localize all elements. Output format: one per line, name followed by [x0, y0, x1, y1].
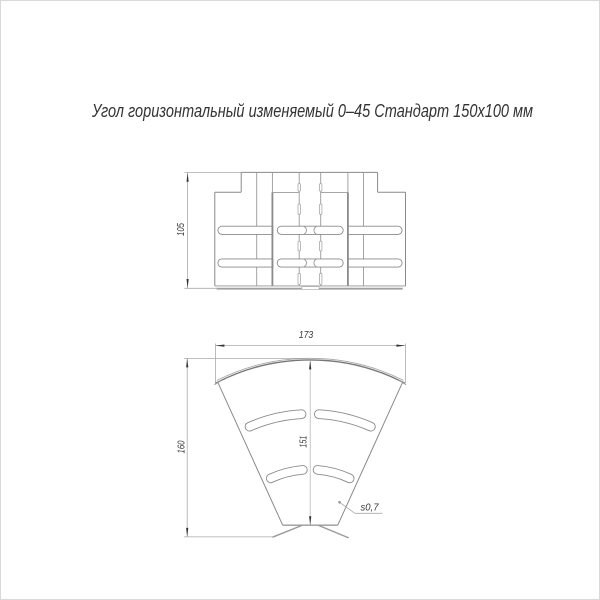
svg-text:s0,7: s0,7: [361, 502, 380, 514]
svg-text:105: 105: [175, 223, 187, 236]
svg-text:160: 160: [175, 440, 187, 453]
svg-text:173: 173: [299, 329, 314, 341]
svg-text:151: 151: [298, 436, 310, 448]
svg-text:Угол горизонтальный изменяемый: Угол горизонтальный изменяемый 0–45 Стан…: [91, 101, 533, 121]
